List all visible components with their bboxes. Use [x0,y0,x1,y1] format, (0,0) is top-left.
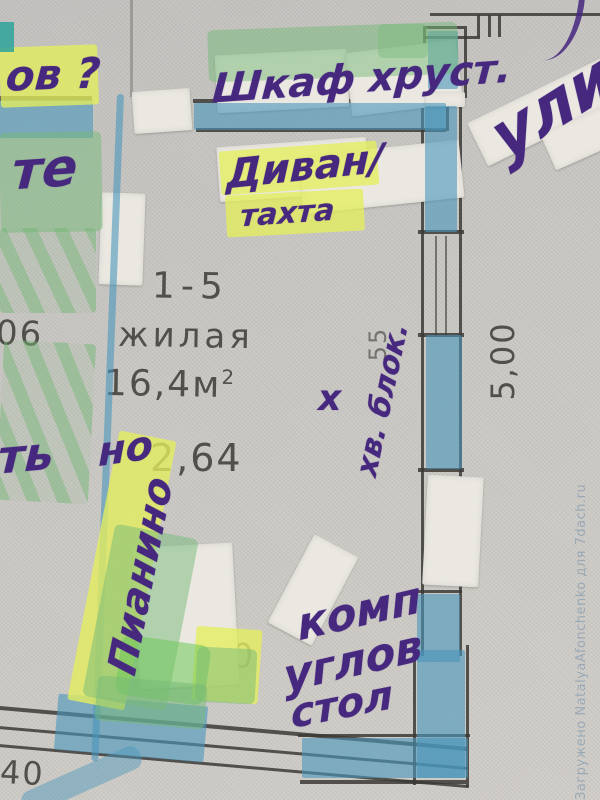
marker-window-mid [426,335,462,469]
printed-dim-right: 5,00 [484,313,522,409]
highlight-left-stripes-1 [0,228,96,313]
annotation-left-upper: те [10,137,79,202]
annotation-hv-block: хв. блок. [343,286,427,514]
wall-tick [477,15,480,37]
wall-tick [416,590,462,593]
floorplan-photo: 06 1-5 жилая 16,4м2 2,64 5,00 55 40 30 [0,0,600,800]
window-glass-line [445,236,447,336]
printed-dim-right-box: 5,00 [455,342,551,438]
printed-area-sup: 2 [221,366,236,389]
annotation-top-left: ов ? [4,48,102,100]
marker-corner-horizontal [302,738,468,778]
annotation-left-mid: ть [0,425,55,484]
tape-left-wall [98,192,145,285]
wall-tick [498,15,501,37]
watermark-text: Загружено NatalyaAfonchenko для 7dach.ru [574,400,589,800]
annotation-cross-mark: х [318,378,341,419]
printed-room-label: жилая [118,315,254,357]
window-glass-line [435,236,437,336]
wall-tick [488,15,491,37]
tape-door-opening [132,88,193,134]
tape-right-wall [422,475,484,588]
annotation-sofa-2: тахта [239,193,336,235]
wall-line-corner [300,780,466,784]
highlight-teal-square [0,22,14,52]
printed-room-id: 1-5 [152,265,230,307]
marker-window-upper [425,106,457,232]
wall-pencil-line [130,0,133,97]
printed-area-value: 16,4м [104,363,222,406]
printed-room-area: 16,4м2 [104,363,237,406]
